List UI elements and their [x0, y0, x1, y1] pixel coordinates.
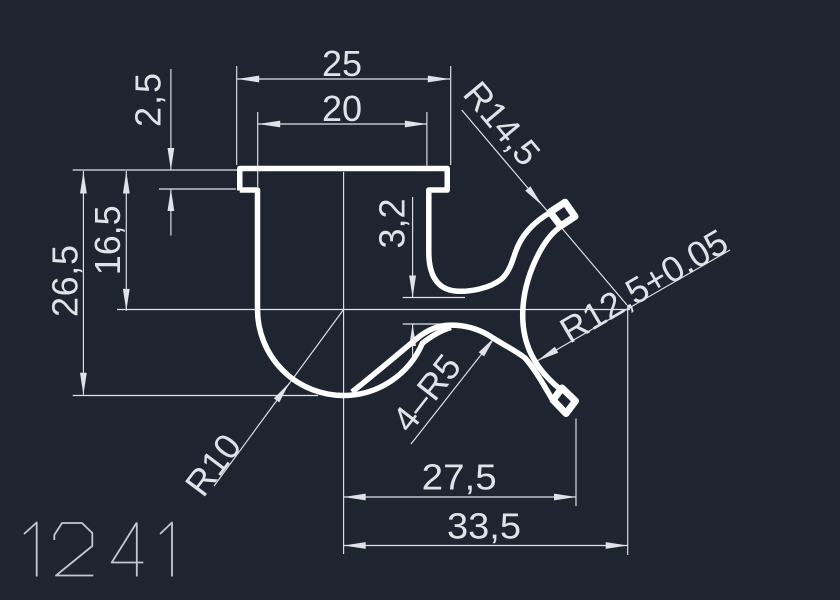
svg-text:33,5: 33,5	[447, 505, 521, 546]
svg-text:25: 25	[322, 43, 362, 84]
svg-text:26,5: 26,5	[45, 245, 86, 317]
svg-text:20: 20	[322, 88, 362, 129]
svg-text:2,5: 2,5	[128, 73, 169, 127]
svg-text:16,5: 16,5	[87, 205, 128, 275]
svg-text:27,5: 27,5	[422, 456, 497, 497]
svg-text:3,2: 3,2	[372, 198, 413, 248]
